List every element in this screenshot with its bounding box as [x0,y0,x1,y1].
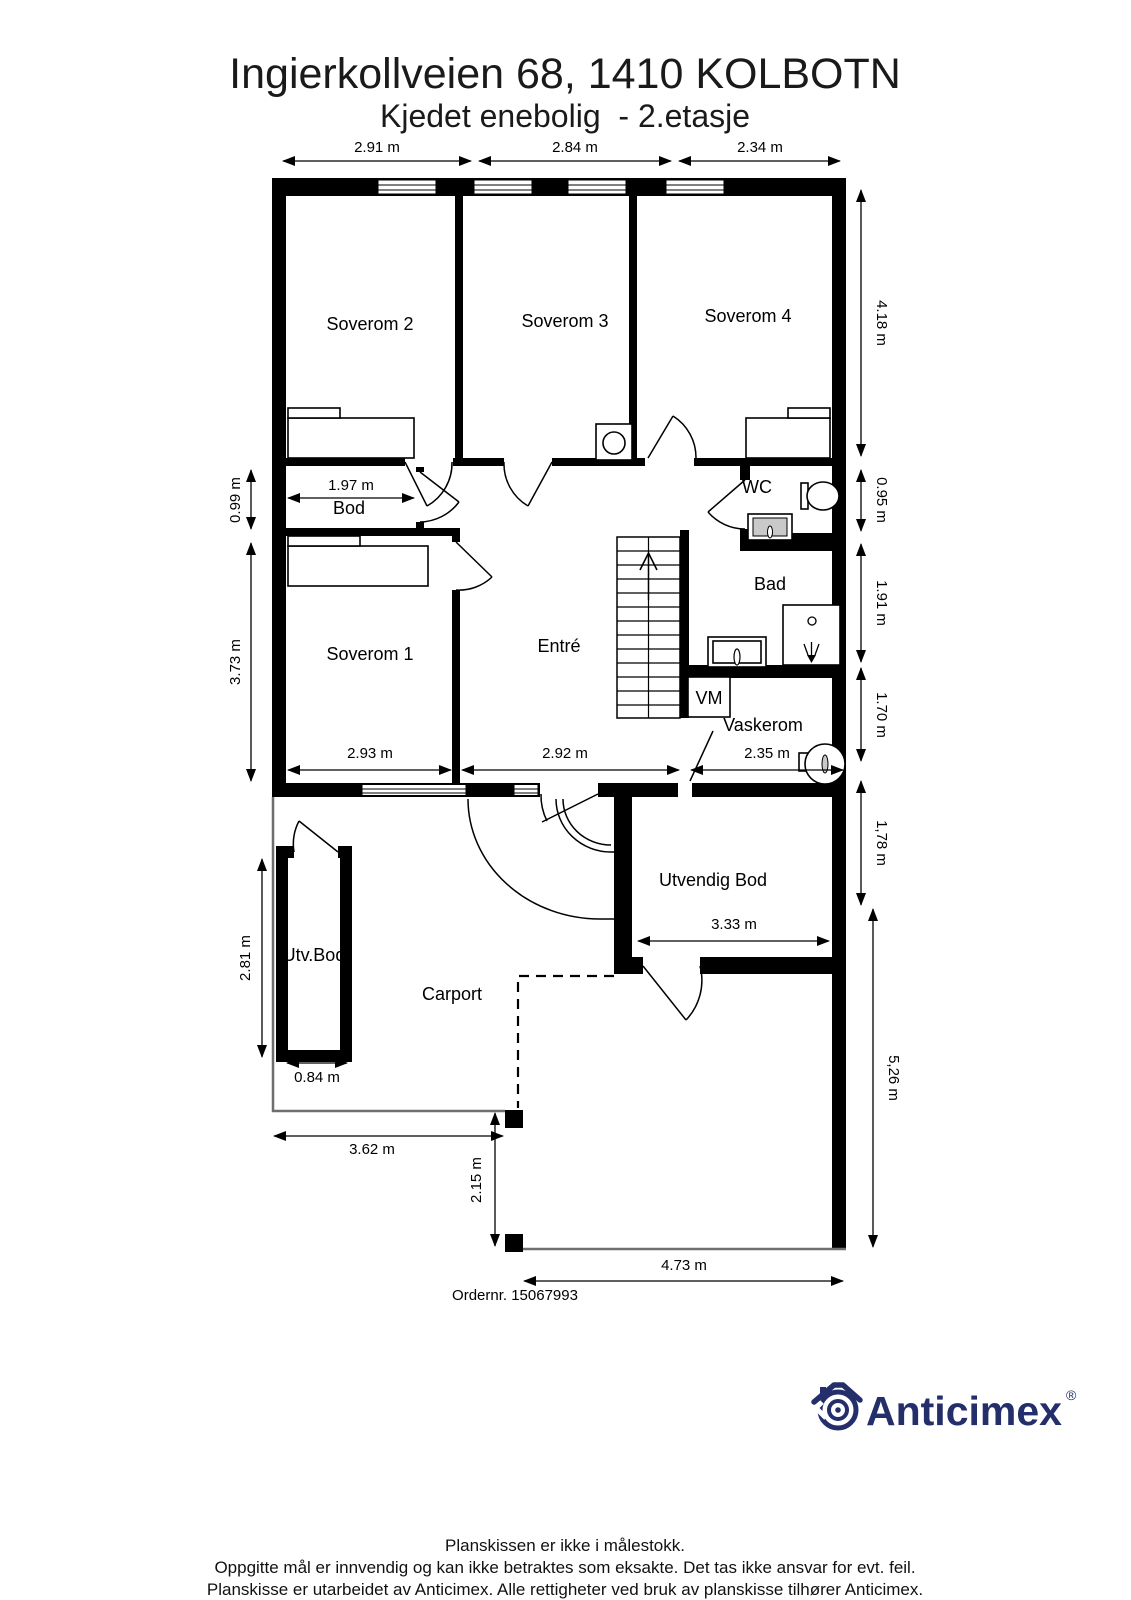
dimension-labels: 2.91 m 2.84 m 2.34 m 4.18 m 0.95 m 1.91 … [227,139,902,1274]
dim-label: 2.84 m [552,139,598,156]
dim-label: 4.18 m [873,300,890,346]
dim-label: 2.93 m [347,745,393,762]
dim-label: 3.62 m [349,1141,395,1158]
wardrobe-soverom1 [288,536,428,586]
carport-pillar [505,1110,523,1128]
shower-icon [783,605,840,665]
room-label-soverom1: Soverom 1 [326,644,413,664]
dim-label: 5,26 m [885,1055,902,1101]
anticimex-logo-text: Anticimex [866,1388,1062,1434]
room-label-bad: Bad [754,574,786,594]
window [568,180,626,194]
dim-label: 1,78 m [873,820,890,866]
vanity-sink-icon [708,637,766,667]
dim-label: 3.33 m [711,916,757,933]
staircase-icon [617,537,680,718]
door-vaskerom [690,731,713,781]
carport-pillar [505,1234,523,1252]
dim-label: 2.15 m [468,1157,485,1203]
dim-label: 1.70 m [873,692,890,738]
toilet-icon [801,482,839,510]
room-label-carport: Carport [422,984,482,1004]
door-soverom4 [648,416,696,458]
wc-sink-icon [748,514,792,540]
window [666,180,724,194]
dim-label: 0.84 m [294,1069,340,1086]
room-label-utvendig-bod: Utvendig Bod [659,870,767,890]
room-label-bod: Bod [333,498,365,518]
carport-outline [273,797,846,1249]
footer-line-1: Planskissen er ikke i målestokk. [445,1536,685,1555]
dim-label: 2.91 m [354,139,400,156]
registered-mark: ® [1066,1387,1077,1403]
window [514,785,538,796]
window [378,180,436,194]
room-label-soverom4: Soverom 4 [704,306,791,326]
anticimex-logo: Anticimex ® [814,1385,1077,1434]
door-soverom3 [504,462,552,506]
door-entrance [541,794,598,822]
footer-line-2: Oppgitte mål er innvendig og kan ikke be… [214,1558,915,1577]
order-number: Ordernr. 15067993 [452,1287,578,1304]
door-soverom2 [405,462,452,506]
page-title: Ingierkollveien 68, 1410 KOLBOTN [229,50,901,98]
carport-dashed-line [518,976,614,1108]
dim-label: 3.73 m [227,639,244,685]
room-label-wc: WC [742,477,772,497]
dim-label: 2.92 m [542,745,588,762]
room-label-entre: Entré [537,636,580,656]
wardrobe-soverom2 [288,408,414,458]
basin-icon [596,424,632,460]
floor-plan-svg: Ingierkollveien 68, 1410 KOLBOTN Kjedet … [0,0,1131,1600]
room-label-vm: VM [696,688,723,708]
curved-walkway [468,799,614,919]
footer-line-3: Planskisse er utarbeidet av Anticimex. A… [207,1580,923,1599]
dim-label: 4.73 m [661,1257,707,1274]
dim-label: 0.95 m [873,477,890,523]
room-label-vaskerom: Vaskerom [723,715,803,735]
dim-label: 0.99 m [227,477,244,523]
exterior-walls [272,178,846,1250]
window [362,785,466,796]
room-label-utv-bod: Utv.Bod [283,945,346,965]
window [474,180,532,194]
dim-label: 2.81 m [237,935,254,981]
room-label-soverom3: Soverom 3 [521,311,608,331]
wardrobe-soverom4 [746,408,830,458]
dim-label: 1.97 m [328,477,374,494]
footer-disclaimer: Planskissen er ikke i målestokk. Oppgitt… [207,1536,923,1599]
dim-label: 2.35 m [744,745,790,762]
anticimex-house-icon [814,1385,860,1428]
dim-label: 2.34 m [737,139,783,156]
round-sink-icon [799,744,845,784]
room-label-soverom2: Soverom 2 [326,314,413,334]
page-subtitle: Kjedet enebolig - 2.etasje [380,98,750,134]
door-soverom1 [456,542,492,590]
dim-label: 1.91 m [873,580,890,626]
